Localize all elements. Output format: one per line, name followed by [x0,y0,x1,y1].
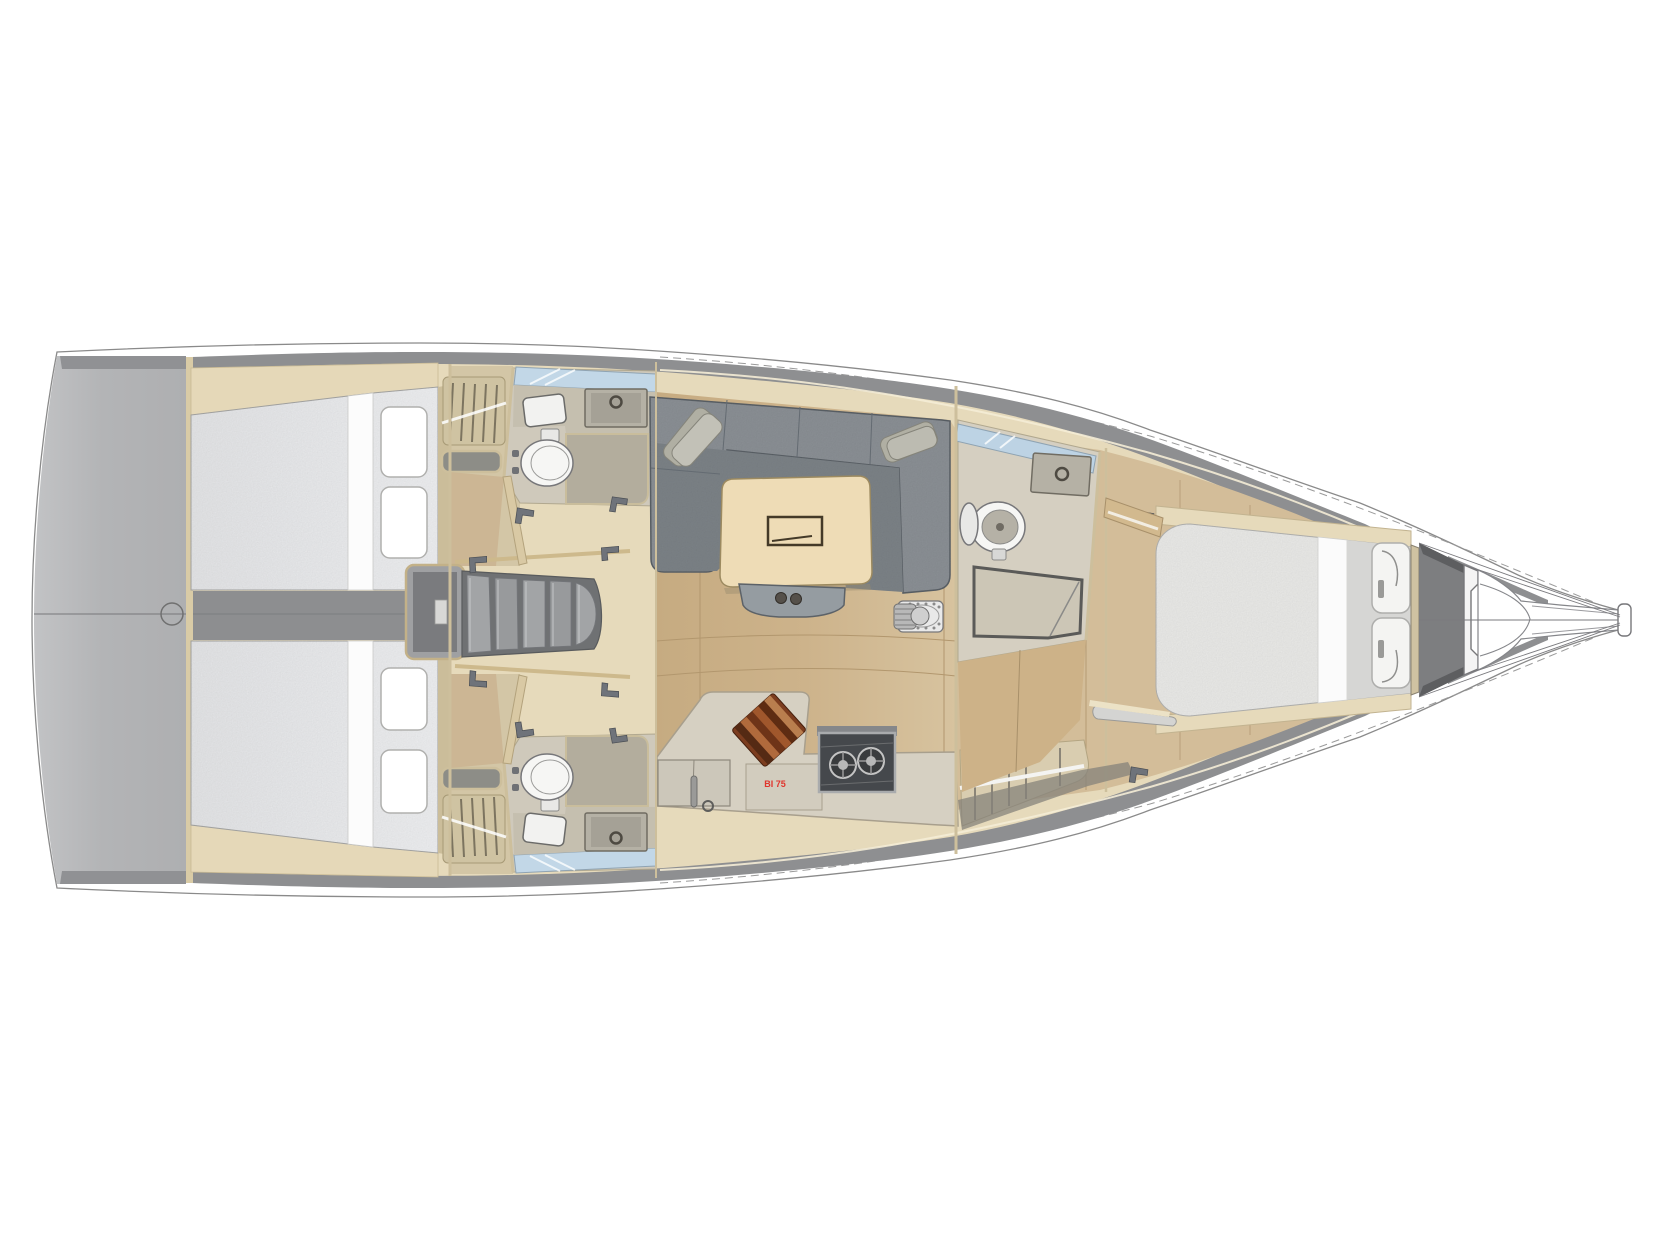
svg-text:BI 75: BI 75 [764,779,786,789]
